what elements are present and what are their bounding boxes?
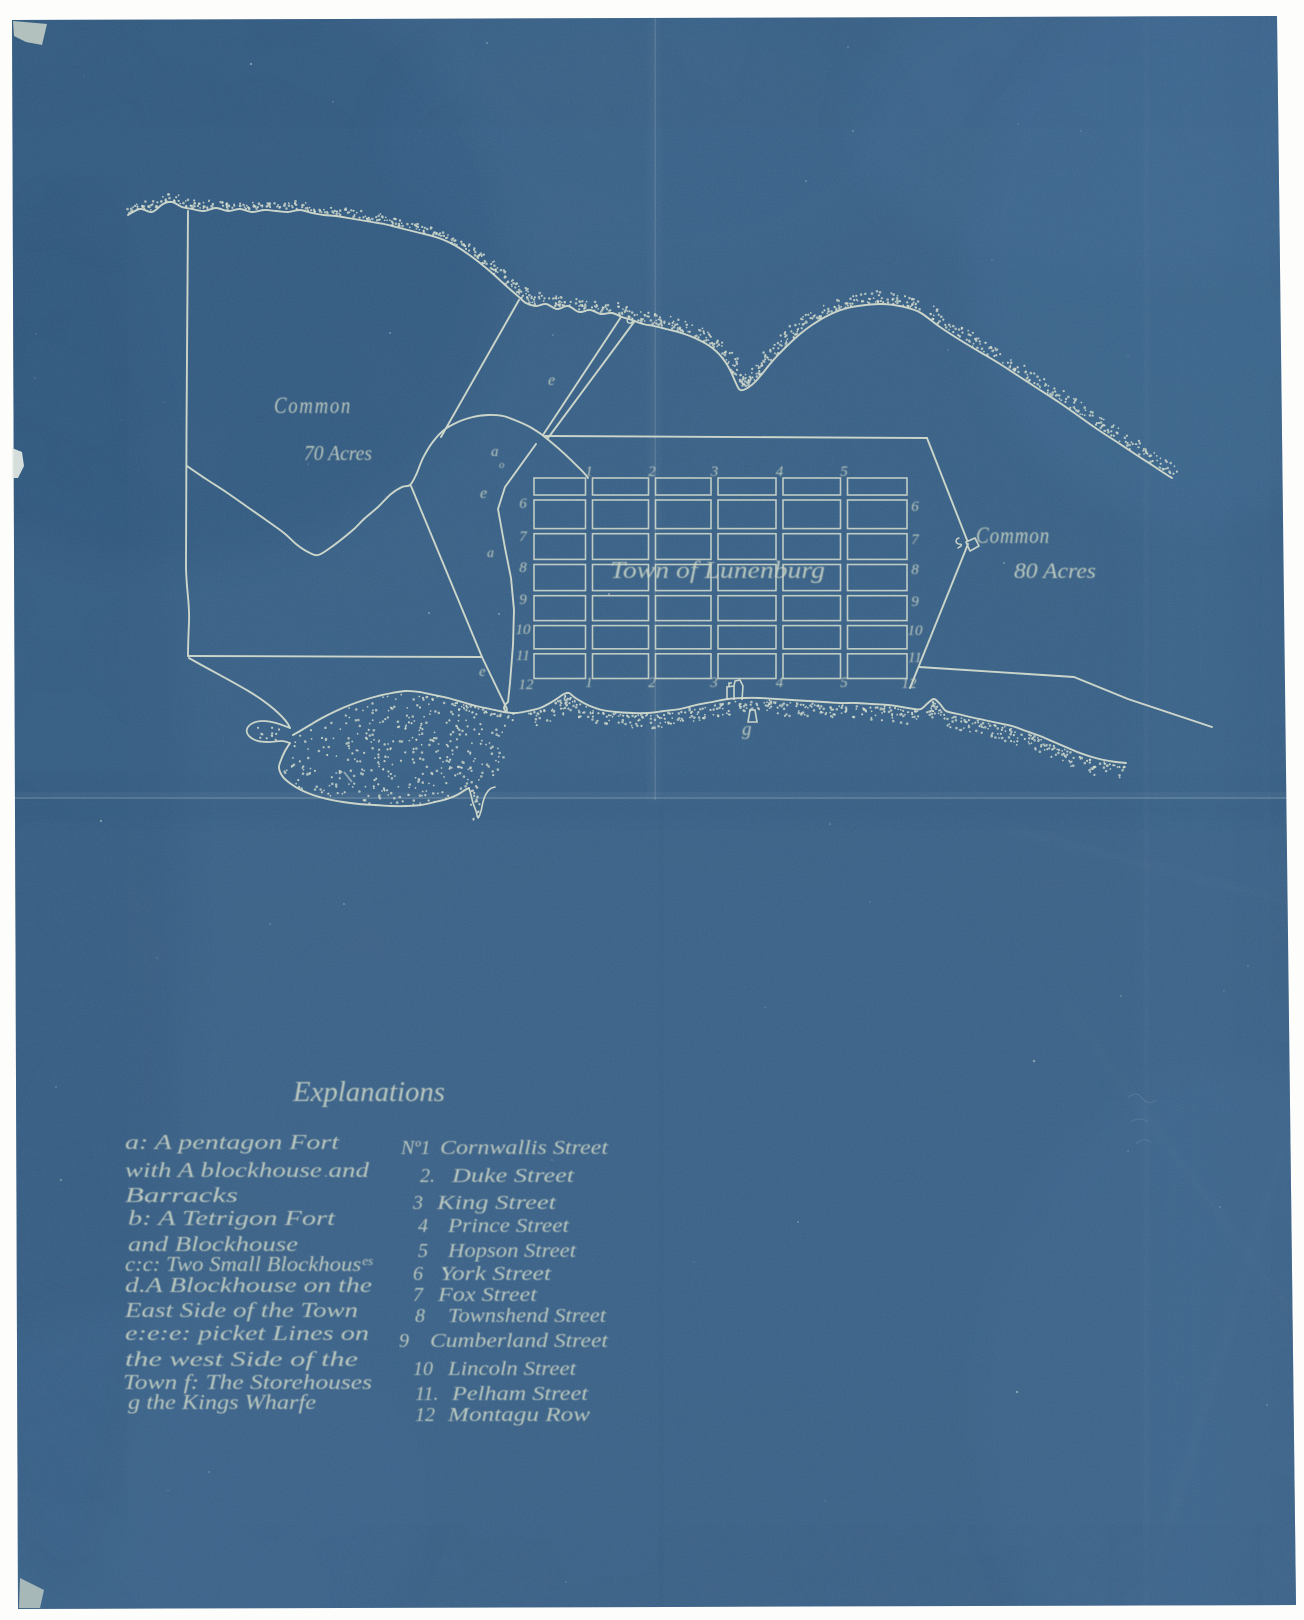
svg-text:Hopson Street: Hopson Street: [447, 1240, 577, 1262]
svg-text:a: a: [491, 444, 499, 460]
svg-text:70 Acres: 70 Acres: [304, 441, 372, 465]
svg-text:Nº1: Nº1: [400, 1137, 431, 1159]
svg-text:o: o: [499, 459, 505, 471]
svg-text:3: 3: [412, 1192, 423, 1214]
svg-text:Town of Lunenburg: Town of Lunenburg: [610, 558, 825, 584]
svg-text:Cumberland Street: Cumberland Street: [430, 1330, 609, 1352]
svg-text:Common: Common: [274, 393, 352, 418]
svg-text:8: 8: [519, 560, 527, 576]
svg-text:12: 12: [902, 676, 918, 692]
svg-text:Townshend Street: Townshend Street: [448, 1305, 606, 1327]
svg-text:5: 5: [840, 464, 848, 480]
svg-text:7: 7: [413, 1284, 424, 1306]
svg-text:Pelham Street: Pelham Street: [451, 1383, 589, 1405]
svg-text:e: e: [479, 664, 486, 680]
svg-text:g: g: [742, 719, 752, 740]
svg-text:6: 6: [519, 496, 527, 512]
svg-text:8: 8: [911, 562, 919, 578]
svg-text:12: 12: [415, 1404, 435, 1426]
svg-text:e: e: [548, 372, 555, 389]
svg-text:with A blockhouse and: with A blockhouse and: [125, 1158, 370, 1182]
svg-text:1: 1: [585, 464, 593, 480]
svg-text:2.: 2.: [420, 1165, 435, 1187]
svg-text:Duke Street: Duke Street: [451, 1165, 575, 1187]
svg-text:3: 3: [709, 675, 718, 691]
svg-text:80 Acres: 80 Acres: [1014, 558, 1096, 583]
svg-text:4: 4: [776, 464, 784, 480]
svg-text:East Side of the Town: East Side of the Town: [124, 1298, 358, 1322]
svg-text:4: 4: [418, 1215, 428, 1237]
svg-text:9: 9: [911, 594, 919, 610]
svg-text:6: 6: [413, 1263, 423, 1285]
svg-text:10: 10: [908, 623, 924, 639]
svg-text:5: 5: [418, 1240, 428, 1262]
svg-text:Fox Street: Fox Street: [437, 1284, 538, 1306]
svg-text:e: e: [480, 485, 487, 502]
svg-text:5: 5: [840, 675, 848, 691]
svg-text:3: 3: [710, 464, 719, 480]
svg-text:Common: Common: [976, 523, 1050, 548]
svg-text:1: 1: [585, 675, 593, 691]
svg-text:Cornwallis Street: Cornwallis Street: [440, 1137, 609, 1159]
svg-text:Barracks: Barracks: [125, 1183, 238, 1207]
svg-text:10: 10: [516, 622, 532, 638]
svg-text:6: 6: [911, 499, 919, 515]
svg-text:e:e:e: picket Lines on: e:e:e: picket Lines on: [125, 1321, 369, 1345]
svg-text:Lincoln Street: Lincoln Street: [447, 1358, 577, 1380]
svg-text:a: A pentagon Fort: a: A pentagon Fort: [125, 1130, 341, 1154]
svg-text:Explanations: Explanations: [292, 1076, 445, 1108]
svg-text:10: 10: [413, 1358, 433, 1380]
svg-text:8: 8: [415, 1305, 425, 1327]
svg-text:b: A Tetrigon Fort: b: A Tetrigon Fort: [128, 1206, 337, 1230]
svg-text:2: 2: [648, 675, 656, 691]
svg-text:4: 4: [776, 675, 784, 691]
svg-text:2: 2: [648, 464, 656, 480]
svg-text:Prince Street: Prince Street: [447, 1215, 570, 1237]
svg-text:a: a: [487, 546, 494, 561]
svg-text:g the Kings Wharfe: g the Kings Wharfe: [128, 1390, 316, 1414]
svg-text:d.A Blockhouse on the: d.A Blockhouse on the: [125, 1273, 372, 1297]
svg-text:11: 11: [516, 648, 530, 664]
svg-text:11: 11: [908, 650, 922, 666]
svg-text:9: 9: [399, 1330, 409, 1352]
svg-text:King Street: King Street: [436, 1192, 557, 1214]
svg-text:11.: 11.: [415, 1383, 439, 1405]
svg-text:9: 9: [519, 592, 527, 608]
svg-text:the west Side of the: the west Side of the: [125, 1347, 358, 1371]
svg-text:12: 12: [519, 677, 535, 693]
svg-text:York Street: York Street: [440, 1263, 552, 1285]
svg-text:Montagu Row: Montagu Row: [447, 1404, 591, 1426]
